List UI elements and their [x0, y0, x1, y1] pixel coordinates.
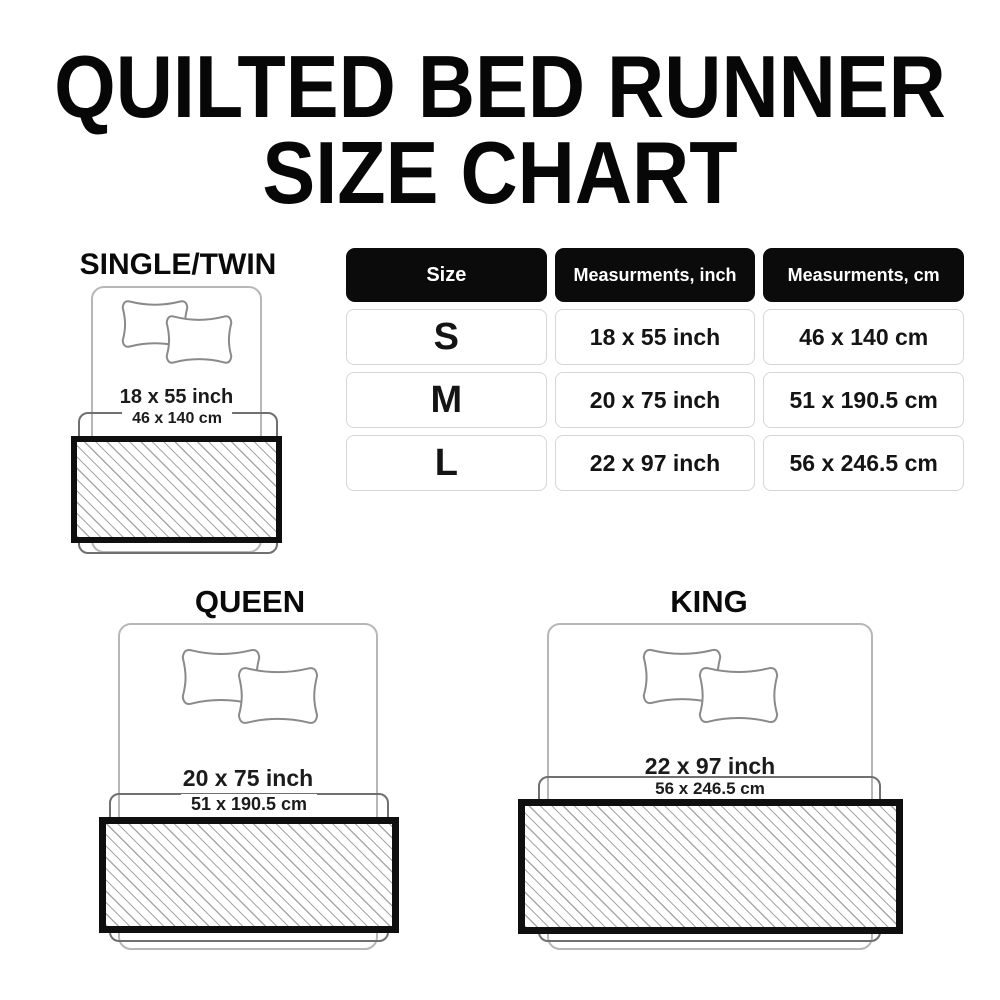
table-header-cm: Measurments, cm	[763, 248, 964, 302]
queen-inch-measurement: 20 x 75 inch	[120, 765, 376, 792]
table-cell-size-m: M	[346, 372, 547, 428]
single-twin-label: SINGLE/TWIN	[80, 248, 277, 282]
table-cell-inch-s: 18 x 55 inch	[555, 309, 756, 365]
pillow-icon	[232, 663, 324, 728]
size-chart-infographic: QUILTED BED RUNNER SIZE CHART SINGLE/TWI…	[0, 0, 1000, 1000]
table-cell-cm-s: 46 x 140 cm	[763, 309, 964, 365]
queen-cm-measurement: 51 x 190.5 cm	[181, 794, 317, 815]
table-cell-size-s: S	[346, 309, 547, 365]
size-table: Size Measurments, inch Measurments, cm S…	[346, 248, 964, 491]
page-title: QUILTED BED RUNNER SIZE CHART	[0, 44, 1000, 216]
page-title-line1: QUILTED BED RUNNER	[50, 44, 950, 130]
table-cell-size-l: L	[346, 435, 547, 491]
table-cell-inch-m: 20 x 75 inch	[555, 372, 756, 428]
single-bed-runner	[71, 436, 282, 543]
table-header-inch: Measurments, inch	[555, 248, 756, 302]
table-cell-cm-m: 51 x 190.5 cm	[763, 372, 964, 428]
king-bed-runner	[518, 799, 903, 934]
table-header-size: Size	[346, 248, 547, 302]
king-label: KING	[670, 584, 748, 620]
queen-label: QUEEN	[195, 584, 305, 620]
single-cm-measurement: 46 x 140 cm	[122, 410, 232, 428]
queen-bed-runner	[99, 817, 399, 933]
table-cell-inch-l: 22 x 97 inch	[555, 435, 756, 491]
single-inch-measurement: 18 x 55 inch	[93, 386, 260, 409]
pillow-icon	[693, 663, 784, 727]
king-cm-measurement: 56 x 246.5 cm	[645, 779, 775, 799]
page-title-line2: SIZE CHART	[50, 130, 950, 216]
pillow-icon	[161, 312, 237, 367]
table-cell-cm-l: 56 x 246.5 cm	[763, 435, 964, 491]
